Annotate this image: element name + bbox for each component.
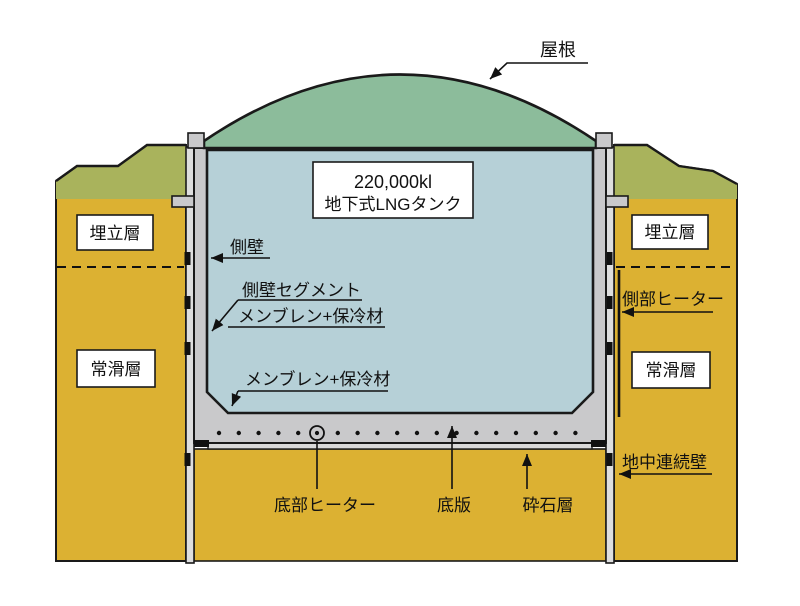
side-wall-label: 側壁 bbox=[230, 238, 264, 257]
landfill-left-label: 埋立層 bbox=[90, 224, 141, 243]
crushed-stone-label: 砕石層 bbox=[523, 496, 574, 515]
diaphragm-wall-label: 地中連続壁 bbox=[622, 453, 707, 472]
membrane-upper-label: メンブレン+保冷材 bbox=[238, 306, 383, 326]
slab-end-bar-right bbox=[591, 440, 606, 447]
roof-label: 屋根 bbox=[540, 40, 576, 60]
bottom-slab-label: 底版 bbox=[437, 496, 471, 515]
tank-capacity-text: 220,000kl bbox=[354, 172, 432, 192]
ledge-right bbox=[606, 196, 628, 207]
tank-type-text: 地下式LNGタンク bbox=[325, 195, 462, 214]
lng-tank-cross-section-diagram: 220,000kl 地下式LNGタンク 埋立層 埋立層 常滑層 常滑層 屋根 側… bbox=[0, 0, 800, 606]
ground-left-topsoil bbox=[56, 145, 186, 199]
landfill-right-label: 埋立層 bbox=[645, 223, 696, 242]
ledge-left bbox=[172, 196, 194, 207]
membrane-lower-label: メンブレン+保冷材 bbox=[245, 369, 390, 389]
roof-dome bbox=[204, 75, 596, 149]
side-wall-segment-label: 側壁セグメント bbox=[242, 281, 361, 300]
tokoname-left-label: 常滑層 bbox=[91, 360, 142, 379]
wall-cap-left bbox=[188, 133, 204, 148]
slab-end-bar-left bbox=[194, 440, 209, 447]
tokoname-right-label: 常滑層 bbox=[646, 361, 697, 380]
side-heater-label: 側部ヒーター bbox=[622, 290, 724, 309]
ground-right-topsoil bbox=[614, 145, 737, 199]
diagram-canvas: 220,000kl 地下式LNGタンク 埋立層 埋立層 常滑層 常滑層 屋根 側… bbox=[0, 0, 800, 606]
wall-cap-right bbox=[596, 133, 612, 148]
bottom-heater-label: 底部ヒーター bbox=[274, 496, 376, 515]
bottom-heater-symbol-dot bbox=[315, 431, 319, 435]
roof-leader bbox=[490, 63, 588, 79]
